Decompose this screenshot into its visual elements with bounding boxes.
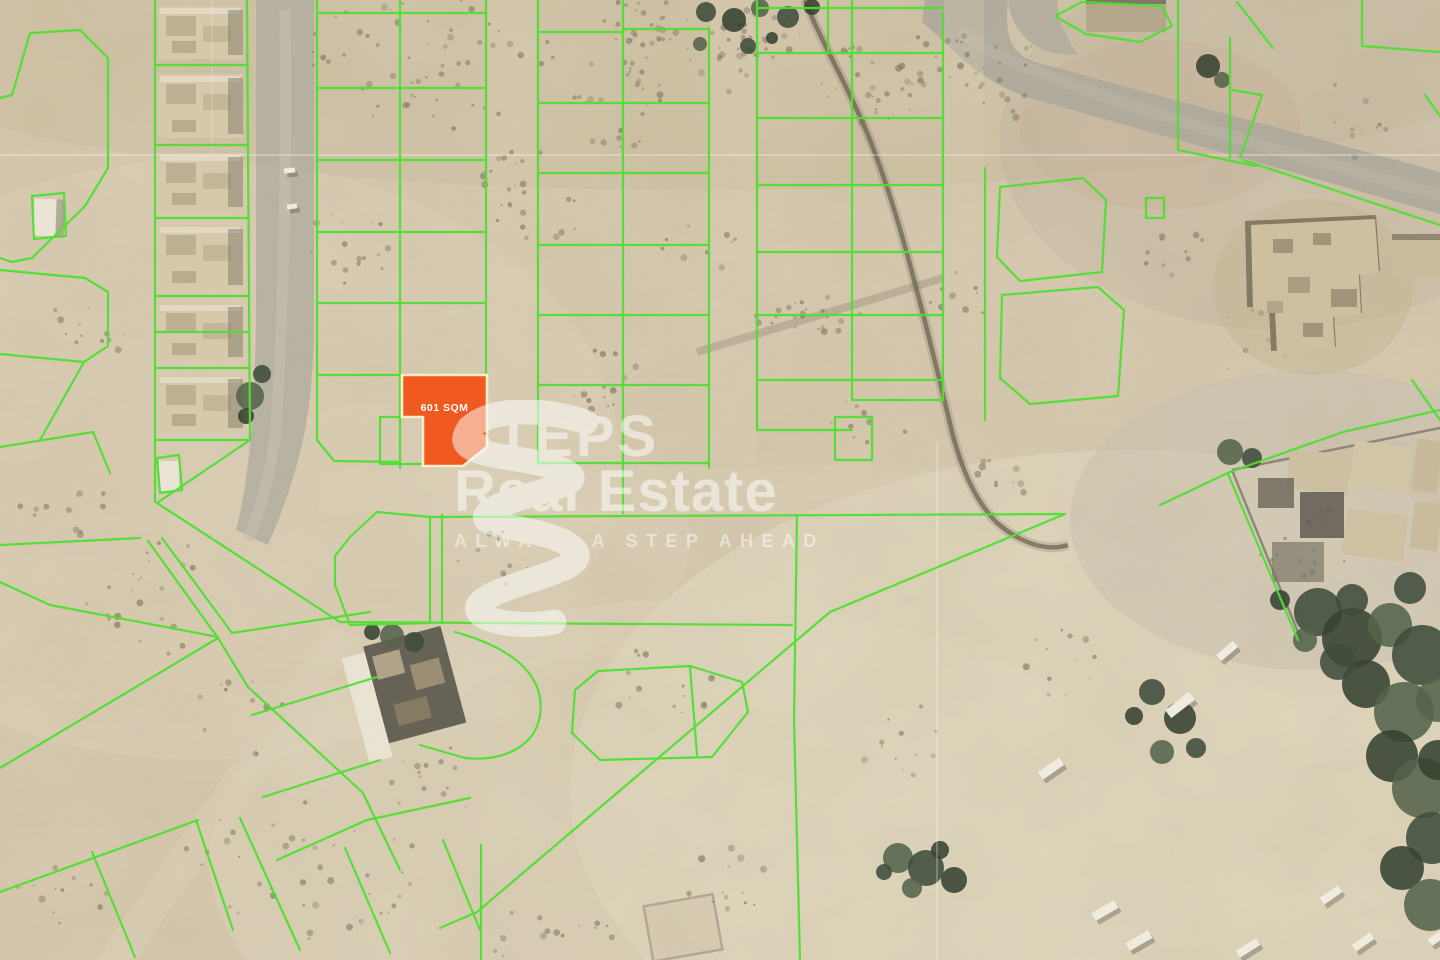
- film-grain: [0, 0, 1440, 960]
- satellite-map-canvas: [0, 0, 1440, 960]
- listing-map-image: 601 SQM STEPS Real Estate ALWAYS A STEP …: [0, 0, 1440, 960]
